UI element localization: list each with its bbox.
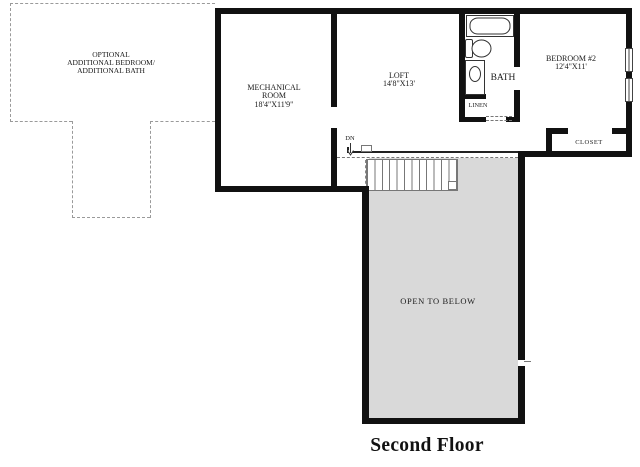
optional-outline-top [10, 3, 215, 5]
hall-opening-dash-bottom [486, 120, 512, 122]
optional-outline-tab-right [150, 121, 152, 218]
down-arrow-icon [345, 143, 356, 156]
optional-outline-left [10, 3, 12, 122]
optional-outline-bottom-left [10, 121, 72, 123]
closet-label: CLOSET [575, 140, 603, 147]
wall-right-upper [626, 8, 632, 48]
loft-label: LOFT 14'8"X13' [383, 72, 415, 89]
page-title: Second Floor [370, 435, 484, 457]
stair-treads [366, 159, 458, 191]
optional-area-label: OPTIONAL ADDITIONAL BEDROOM/ ADDITIONAL … [67, 51, 155, 75]
wall-notch-tick [524, 361, 531, 362]
wall-mechanical-bottom [215, 186, 369, 192]
bedroom2-label: BEDROOM #2 12'4"X11' [546, 55, 596, 72]
optional-outline-tab-bottom [72, 217, 150, 219]
open-to-below-label: OPEN TO BELOW [400, 297, 476, 306]
bath-label: BATH [491, 73, 516, 83]
stair-corner-square [448, 181, 457, 190]
wall-left [215, 8, 221, 192]
sink-vanity [465, 60, 485, 95]
wall-bedroom-bottom [518, 151, 632, 157]
wall-mechanical-loft-lower [331, 128, 337, 192]
wall-open-below-right-lower [518, 366, 525, 424]
wall-open-below-right-upper [518, 151, 525, 360]
stair-newel [361, 145, 372, 152]
bathtub [466, 15, 514, 37]
wall-top [215, 8, 632, 14]
toilet [465, 37, 492, 60]
wall-mechanical-loft-upper [331, 8, 337, 107]
linen-label: LINEN [469, 103, 488, 110]
floor-plan: OPTIONAL ADDITIONAL BEDROOM/ ADDITIONAL … [0, 0, 640, 467]
bedroom-window-upper [625, 48, 633, 72]
wall-open-below-left [362, 186, 369, 424]
wall-closet-top-left [552, 128, 568, 134]
stair-rail [348, 151, 518, 153]
optional-outline-tab-left [72, 121, 74, 218]
open-to-below-area [369, 158, 518, 418]
optional-outline-bottom-right [150, 121, 215, 123]
wall-open-below-bottom [362, 418, 525, 424]
wall-linen-bottom [459, 117, 486, 122]
stairs-dn-label: DN [345, 136, 354, 143]
wall-right-lower [626, 100, 632, 157]
wall-bath-bedroom-upper [514, 8, 520, 67]
bedroom-window-lower [625, 78, 633, 102]
wall-closet-top-right [612, 128, 626, 134]
mechanical-room-label: MECHANICAL ROOM 18'4"X11'9" [247, 84, 300, 109]
hall-opening-dash-top [486, 116, 512, 118]
